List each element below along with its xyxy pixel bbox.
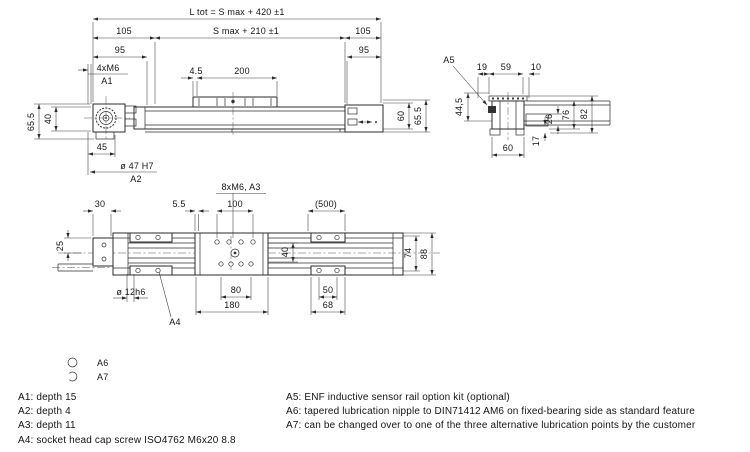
note-a6: A6: tapered lubrication nipple to DIN714… xyxy=(286,406,695,417)
dim-60-bottom: 60 xyxy=(503,143,513,153)
label-dia12: ø 12h6 xyxy=(116,287,145,297)
dim-82: 82 xyxy=(579,109,589,119)
dim-88: 88 xyxy=(419,249,429,259)
legend-a7-label: A7 xyxy=(97,372,108,382)
dim-17: 17 xyxy=(531,136,541,146)
dim-40-left: 40 xyxy=(43,114,53,124)
dim-l-tot: L tot = S max + 420 ±1 xyxy=(189,7,284,17)
notes-right: A5: ENF inductive sensor rail option kit… xyxy=(286,392,696,431)
dim-105-left: 105 xyxy=(116,26,132,36)
dim-45: 45 xyxy=(97,142,107,152)
note-a5: A5: ENF inductive sensor rail option kit… xyxy=(286,392,510,403)
note-a3: A3: depth 11 xyxy=(18,420,76,431)
dim-200: 200 xyxy=(234,66,250,76)
dim-44-5: 44,5 xyxy=(454,98,464,116)
dim-30: 30 xyxy=(95,199,105,209)
dim-25: 25 xyxy=(55,241,65,251)
label-a1: A1 xyxy=(101,76,112,86)
dim-95-right: 95 xyxy=(359,45,369,55)
dim-80: 80 xyxy=(231,285,241,295)
dim-5-5: 5.5 xyxy=(172,199,185,209)
dim-65-5-left: 65.5 xyxy=(26,113,36,131)
label-a2: A2 xyxy=(130,174,141,184)
label-4xm6: 4xM6 xyxy=(97,63,120,73)
lubrication-point-half-circle-icon xyxy=(69,372,77,381)
dim-s-max: S max + 210 ±1 xyxy=(213,26,279,36)
note-a4: A4: socket head cap screw ISO4762 M6x20 … xyxy=(18,435,236,446)
dim-26: 26 xyxy=(544,114,554,124)
technical-drawing: L tot = S max + 420 ±1 105 S max + 210 ±… xyxy=(0,0,750,452)
dim-40-top-view: 40 xyxy=(280,247,290,257)
label-a4: A4 xyxy=(169,317,180,327)
label-dia47: ø 47 H7 xyxy=(120,161,153,171)
legend-a6-label: A6 xyxy=(97,358,108,368)
dim-50: 50 xyxy=(323,285,333,295)
dim-105-right: 105 xyxy=(355,26,371,36)
label-a5: A5 xyxy=(443,55,454,65)
dim-10: 10 xyxy=(531,62,541,72)
dim-68: 68 xyxy=(323,300,333,310)
dim-65-5-right: 65.5 xyxy=(413,107,423,125)
notes-left: A1: depth 15 A2: depth 4 A3: depth 11 A4… xyxy=(18,392,236,446)
dim-500: (500) xyxy=(315,199,337,209)
dim-180: 180 xyxy=(224,300,240,310)
note-a2: A2: depth 4 xyxy=(18,406,71,417)
legend: A6 A7 xyxy=(68,358,108,382)
dim-76: 76 xyxy=(561,110,571,120)
note-a7: A7: can be changed over to one of the th… xyxy=(286,420,696,431)
side-elevation-view: L tot = S max + 420 ±1 105 S max + 210 ±… xyxy=(26,7,430,184)
label-8xm6-a3: 8xM6, A3 xyxy=(221,182,260,192)
lubrication-point-circle-icon xyxy=(68,358,77,367)
dim-100: 100 xyxy=(227,199,243,209)
dim-19: 19 xyxy=(477,62,487,72)
dim-74: 74 xyxy=(403,248,413,258)
dim-60-right: 60 xyxy=(396,111,406,121)
dim-95-left: 95 xyxy=(115,45,125,55)
dim-59: 59 xyxy=(501,62,511,72)
note-a1: A1: depth 15 xyxy=(18,392,77,403)
cross-section-view: A5 19 59 10 44,5 76 82 26 17 60 xyxy=(443,55,610,158)
dim-4-5: 4.5 xyxy=(189,66,202,76)
engineering-drawing-page: L tot = S max + 420 ±1 105 S max + 210 ±… xyxy=(0,0,750,452)
top-view: 30 25 5.5 100 8xM6, A3 (500) 40 74 8 xyxy=(52,182,440,327)
